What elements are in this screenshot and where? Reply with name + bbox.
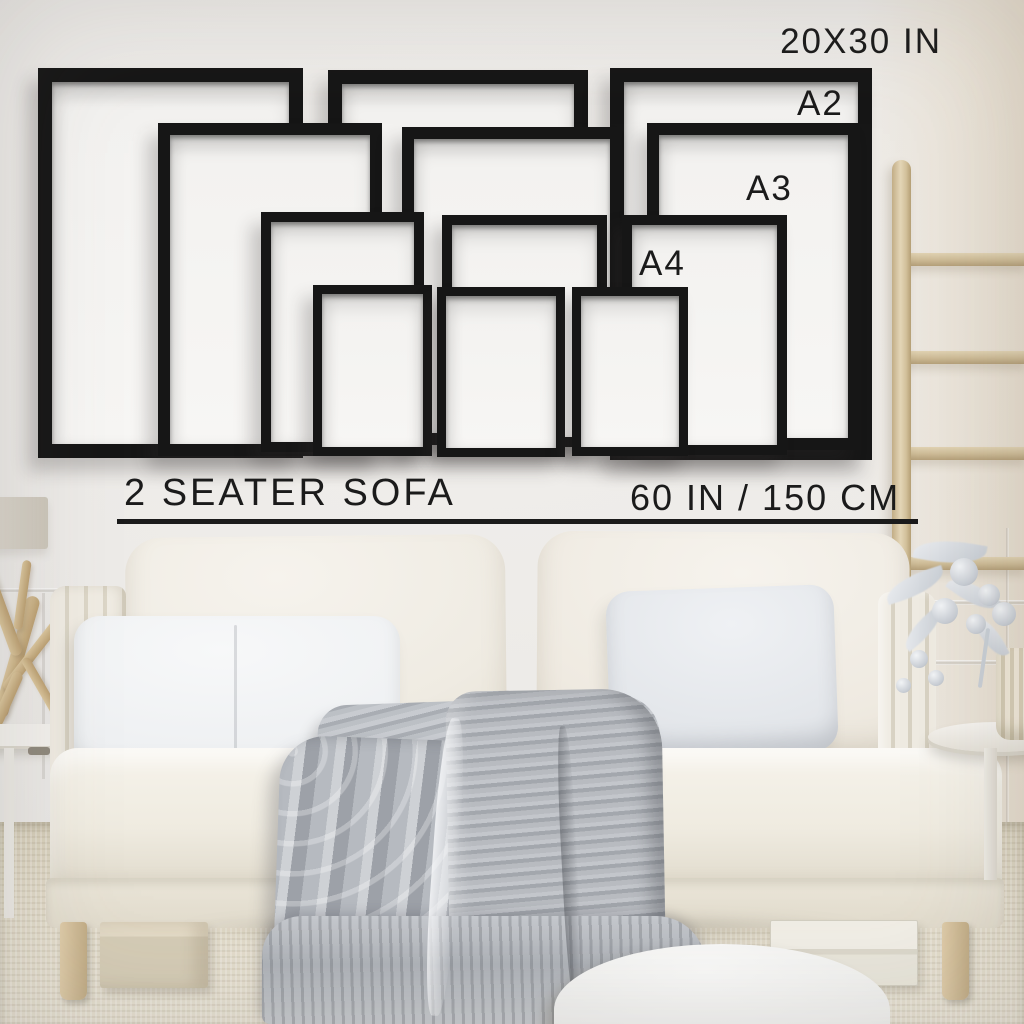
- flower-bloom: [928, 670, 944, 686]
- size-label-20x30: 20X30 IN: [740, 22, 942, 62]
- flower-bloom: [932, 598, 958, 624]
- side-table-right-leg: [984, 748, 997, 880]
- flower-bloom: [978, 584, 1000, 606]
- flower-stem: [978, 628, 990, 688]
- flower-bloom: [992, 602, 1016, 626]
- scale-line: [117, 519, 918, 524]
- size-label-a4: A4: [639, 244, 686, 284]
- frame-a4-middle: [437, 287, 565, 457]
- scale-item-label: 2 SEATER SOFA: [124, 472, 456, 515]
- sofa-leg-right: [942, 922, 969, 1000]
- side-table-left-slot: [28, 747, 50, 755]
- frame-size-guide-scene: 20X30 IN A2 A3 A4 2 SEATER SOFA 60 IN / …: [0, 0, 1024, 1024]
- frame-a4-right: [572, 287, 688, 456]
- scale-width-label: 60 IN / 150 CM: [630, 477, 900, 519]
- side-table-left-leg: [4, 748, 14, 918]
- frame-a4-left: [313, 285, 432, 456]
- sofa-leg-left: [60, 922, 87, 1000]
- flower-bloom: [950, 558, 978, 586]
- flower-bloom: [896, 678, 911, 693]
- size-label-a2: A2: [797, 84, 844, 124]
- dried-flowers: [884, 532, 1024, 728]
- flower-bloom: [966, 614, 986, 634]
- flower-bloom: [910, 650, 928, 668]
- lamp-shade: [0, 497, 48, 549]
- storage-box-tan: [100, 922, 208, 988]
- size-label-a3: A3: [746, 169, 793, 209]
